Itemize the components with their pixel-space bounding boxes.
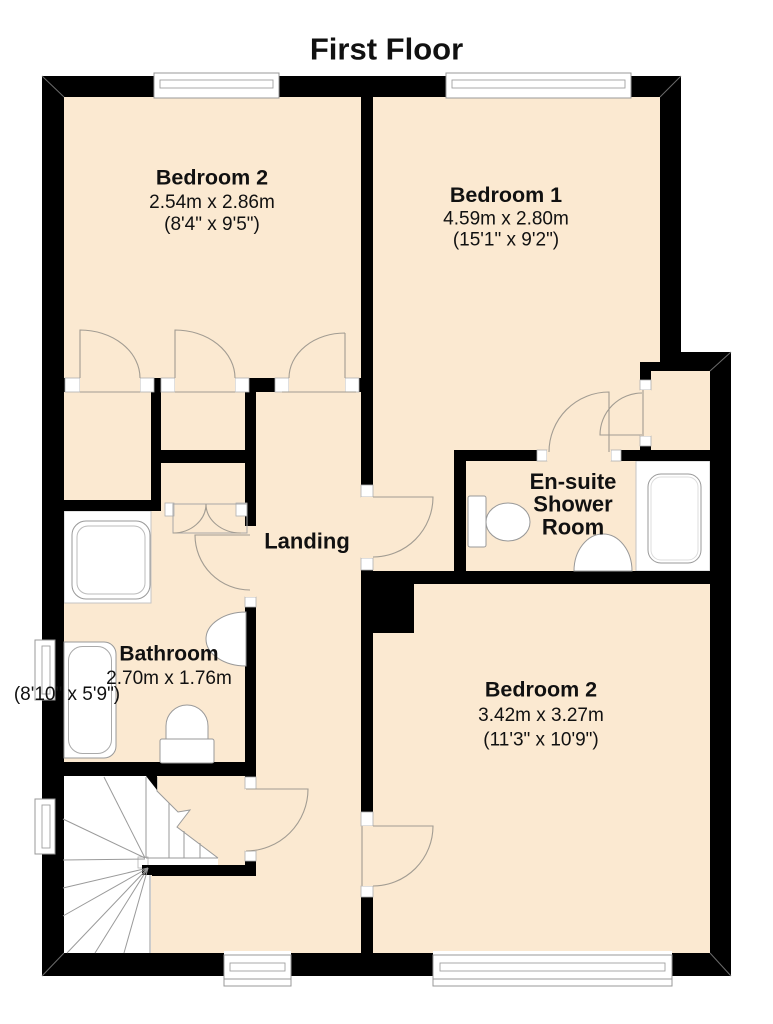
svg-text:4.59m x 2.80m: 4.59m x 2.80m [443,208,569,229]
svg-text:First Floor: First Floor [310,32,463,67]
svg-text:(8'4" x 9'5"): (8'4" x 9'5") [164,214,260,235]
svg-text:Bedroom 2: Bedroom 2 [156,166,268,190]
svg-text:Bedroom 2: Bedroom 2 [485,678,597,702]
svg-text:En-suite: En-suite [530,469,617,494]
svg-text:2.54m x 2.86m: 2.54m x 2.86m [149,192,275,213]
svg-text:3.42m x 3.27m: 3.42m x 3.27m [478,705,604,726]
svg-text:Landing: Landing [264,529,350,554]
svg-text:2.70m x 1.76m: 2.70m x 1.76m [106,668,232,689]
svg-text:(15'1" x 9'2"): (15'1" x 9'2") [453,229,559,250]
svg-text:Bedroom 1: Bedroom 1 [450,183,562,207]
svg-text:Bathroom: Bathroom [119,642,218,665]
svg-text:Room: Room [542,514,604,539]
svg-text:(8'10" x 5'9"): (8'10" x 5'9") [14,684,120,705]
svg-text:(11'3" x 10'9"): (11'3" x 10'9") [483,730,598,751]
svg-text:Shower: Shower [533,492,613,517]
